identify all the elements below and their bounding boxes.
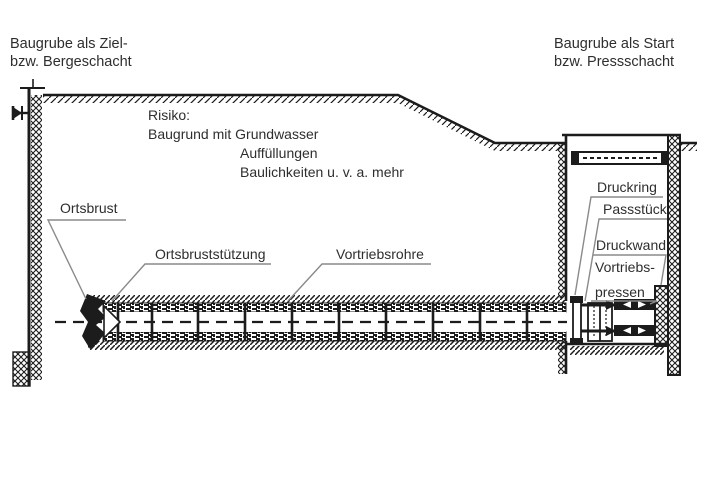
label-risk-item3: Baulichkeiten u. v. a. mehr: [240, 164, 404, 180]
label-face-support: Ortsbruststützung: [155, 246, 266, 262]
shaft-strut: [571, 151, 669, 165]
pipe-wall-top: [103, 303, 566, 312]
wall-footing: [13, 352, 30, 386]
label-risk-item2: Auffüllungen: [240, 145, 318, 161]
label-target-shaft-line1: Baugrube als Ziel-: [10, 36, 128, 52]
pipe-jacking-diagram: Baugrube als Ziel- bzw. Bergeschacht Bau…: [0, 0, 720, 480]
label-adapter-piece: Passstück: [603, 201, 668, 217]
label-jacking-presses-line1: Vortriebs-: [595, 259, 655, 275]
label-jacking-presses-line2: pressen: [595, 284, 645, 300]
diagram-canvas: Baugrube als Ziel- bzw. Bergeschacht Bau…: [0, 0, 720, 480]
label-risk-item1: Baugrund mit Grundwasser: [148, 126, 319, 142]
anchor-icon: [12, 106, 28, 120]
pipe-wall-bottom: [103, 332, 566, 341]
label-start-shaft-line1: Baugrube als Start: [554, 36, 674, 52]
label-pressure-ring: Druckring: [597, 179, 657, 195]
soil-below-pipe: [88, 341, 566, 350]
jacking-pipe: [80, 294, 566, 350]
label-target-shaft-line2: bzw. Bergeschacht: [10, 54, 132, 70]
shaft-right-wall: [668, 135, 680, 375]
soil-above-pipe: [88, 295, 566, 303]
label-risk-heading: Risiko:: [148, 107, 190, 123]
leader-tunnel-face: [48, 220, 126, 299]
label-jacking-pipes: Vortriebsrohre: [336, 246, 424, 262]
shaft-floor-hatch: [570, 346, 664, 355]
label-pressure-wall: Druckwand: [596, 237, 666, 253]
wall-hatch: [31, 95, 42, 380]
label-start-shaft-line2: bzw. Pressschacht: [554, 54, 674, 70]
target-shaft-wall: [12, 79, 45, 386]
pressure-wall-element: [655, 286, 668, 346]
label-tunnel-face: Ortsbrust: [60, 200, 118, 216]
